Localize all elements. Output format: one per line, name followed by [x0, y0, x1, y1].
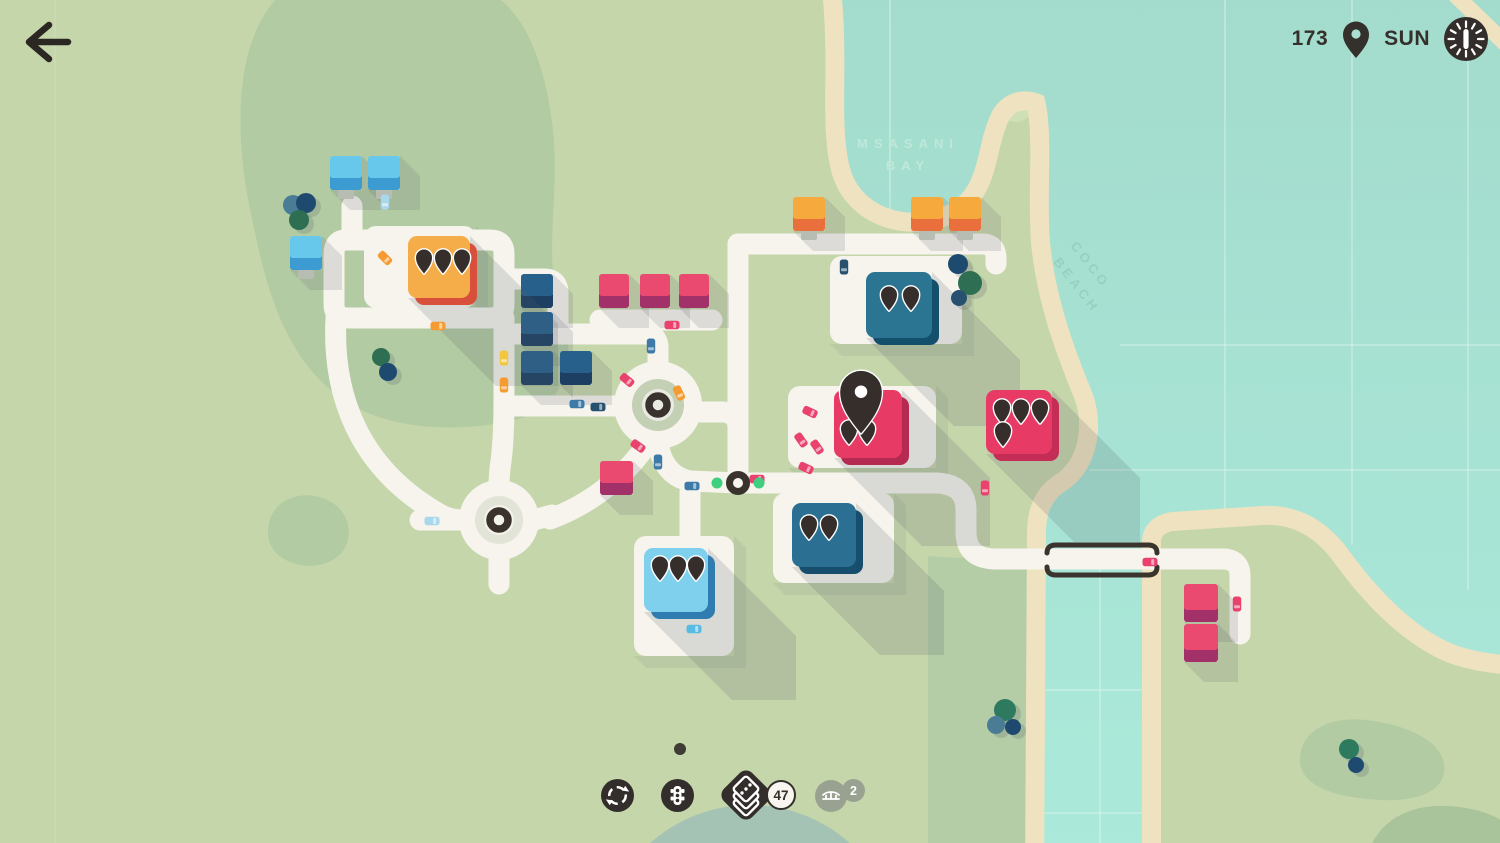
- car-navy: [591, 403, 606, 411]
- green-light: [712, 478, 723, 489]
- tree: [1005, 719, 1021, 735]
- car-steel: [685, 482, 700, 490]
- tree: [951, 290, 967, 306]
- car-yellow: [500, 351, 508, 366]
- tree: [379, 363, 397, 381]
- water-label: MSASANI: [857, 136, 959, 151]
- hud-status: 173 SUN: [1292, 15, 1490, 63]
- back-arrow-icon: [29, 25, 68, 59]
- green-light: [754, 478, 765, 489]
- bridge-icon: [820, 785, 842, 807]
- roundabout-icon: [601, 779, 634, 812]
- traffic-light-icon: [661, 779, 694, 812]
- car-pink: [1233, 597, 1241, 612]
- tree: [1339, 739, 1359, 759]
- tree: [289, 210, 309, 230]
- car-steel: [647, 339, 655, 354]
- traffic-light-tool-button[interactable]: [661, 779, 694, 812]
- car-cyan: [687, 625, 702, 633]
- car-pink: [1143, 558, 1158, 566]
- car-steel: [570, 400, 585, 408]
- location-pin-icon: [1340, 17, 1372, 61]
- bridge-count-badge: 2: [842, 779, 865, 802]
- car-lightblue: [425, 517, 440, 525]
- tree: [1348, 757, 1364, 773]
- notification-dot: [674, 743, 686, 755]
- clock-icon: [1442, 15, 1490, 63]
- game-viewport: MSASANIBAYCOCOBEACH 173 SUN: [0, 0, 1500, 843]
- car-pink: [665, 321, 680, 329]
- pin-count: 173: [1292, 27, 1329, 51]
- water-label: BAY: [886, 158, 930, 173]
- car-orange: [500, 378, 508, 393]
- tree: [948, 254, 968, 274]
- car-lightblue: [381, 195, 389, 210]
- car-navy: [840, 260, 848, 275]
- city-map[interactable]: MSASANIBAYCOCOBEACH: [0, 0, 1500, 843]
- roundabout[interactable]: [614, 361, 702, 449]
- car-orange: [431, 322, 446, 330]
- car-pink: [981, 481, 989, 496]
- roundabout-tool-button[interactable]: [601, 779, 634, 812]
- roundabout[interactable]: [459, 480, 539, 560]
- car-steel: [654, 455, 662, 470]
- back-button[interactable]: [16, 12, 72, 68]
- tree: [987, 716, 1005, 734]
- tile-count-badge: 47: [766, 780, 796, 810]
- day-label: SUN: [1384, 27, 1430, 51]
